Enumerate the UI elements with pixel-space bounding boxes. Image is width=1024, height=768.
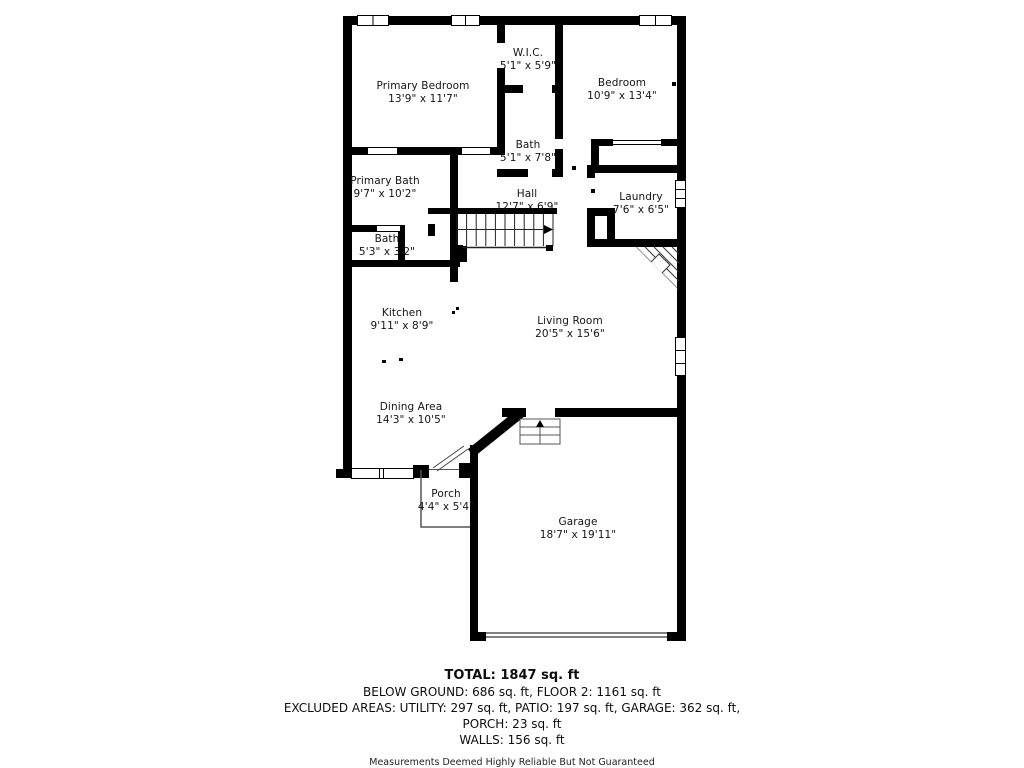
- room-dims: 14'3" x 10'5": [376, 414, 446, 427]
- room-label-bedroom: Bedroom 10'9" x 13'4": [587, 77, 657, 103]
- steps-up-arrow: [536, 420, 544, 427]
- room-dims: 12'7" x 6'9": [496, 201, 559, 214]
- room-label-primary-bedroom: Primary Bedroom 13'9" x 11'7": [377, 80, 470, 106]
- room-label-wic: W.I.C. 5'1" x 5'9": [500, 47, 556, 73]
- room-name: W.I.C.: [513, 47, 543, 59]
- room-dims: 9'7" x 10'2": [350, 188, 420, 201]
- garage-door: [486, 632, 667, 641]
- room-dims: 4'4" x 5'4": [418, 501, 474, 514]
- room-name: Bath: [516, 139, 541, 151]
- room-name: Garage: [558, 516, 597, 528]
- room-dims: 20'5" x 15'6": [535, 328, 605, 341]
- room-label-bath-upper: Bath 5'1" x 7'8": [500, 139, 556, 165]
- room-label-primary-bath: Primary Bath 9'7" x 10'2": [350, 175, 420, 201]
- room-name: Primary Bath: [350, 175, 420, 187]
- room-dims: 18'7" x 19'11": [540, 529, 616, 542]
- room-dims: 10'9" x 13'4": [587, 90, 657, 103]
- entry-steps: [520, 419, 560, 444]
- room-name: Kitchen: [382, 307, 422, 319]
- entry-diagonal-wall: [471, 412, 522, 453]
- excluded-areas: EXCLUDED AREAS: UTILITY: 297 sq. ft, PAT…: [0, 700, 1024, 716]
- porch-outline: [421, 446, 470, 527]
- room-label-kitchen: Kitchen 9'11" x 8'9": [371, 307, 434, 333]
- room-name: Bath: [375, 233, 400, 245]
- room-dims: 9'11" x 8'9": [371, 320, 434, 333]
- room-label-porch: Porch 4'4" x 5'4": [418, 488, 474, 514]
- room-dims: 7'6" x 6'5": [613, 204, 669, 217]
- total-area: TOTAL: 1847 sq. ft: [0, 668, 1024, 684]
- area-summary: TOTAL: 1847 sq. ft BELOW GROUND: 686 sq.…: [0, 668, 1024, 748]
- room-name: Primary Bedroom: [377, 80, 470, 92]
- disclaimer-text: Measurements Deemed Highly Reliable But …: [0, 757, 1024, 768]
- room-name: Dining Area: [380, 401, 443, 413]
- room-label-garage: Garage 18'7" x 19'11": [540, 516, 616, 542]
- basement-stairs-hatch: [636, 247, 679, 290]
- room-dims: 13'9" x 11'7": [377, 93, 470, 106]
- room-name: Living Room: [537, 315, 603, 327]
- floor-plan-page: Primary Bedroom 13'9" x 11'7" W.I.C. 5'1…: [0, 0, 1024, 768]
- room-dims: 5'3" x 3'2": [359, 246, 415, 259]
- room-label-laundry: Laundry 7'6" x 6'5": [613, 191, 669, 217]
- room-label-hall: Hall 12'7" x 6'9": [496, 188, 559, 214]
- porch-area: PORCH: 23 sq. ft: [0, 716, 1024, 732]
- room-name: Hall: [517, 188, 538, 200]
- room-label-bath-lower: Bath 5'3" x 3'2": [359, 233, 415, 259]
- room-label-living-room: Living Room 20'5" x 15'6": [535, 315, 605, 341]
- hall-staircase: [456, 214, 553, 251]
- room-dims: 5'1" x 7'8": [500, 152, 556, 165]
- room-dims: 5'1" x 5'9": [500, 60, 556, 73]
- room-name: Bedroom: [598, 77, 646, 89]
- room-name: Laundry: [619, 191, 663, 203]
- room-label-dining-area: Dining Area 14'3" x 10'5": [376, 401, 446, 427]
- room-name: Porch: [431, 488, 460, 500]
- below-ground-area: BELOW GROUND: 686 sq. ft, FLOOR 2: 1161 …: [0, 684, 1024, 700]
- walls-area: WALLS: 156 sq. ft: [0, 732, 1024, 748]
- floor-plan-drawing: [0, 0, 1024, 768]
- stair-direction-arrow: [544, 225, 553, 234]
